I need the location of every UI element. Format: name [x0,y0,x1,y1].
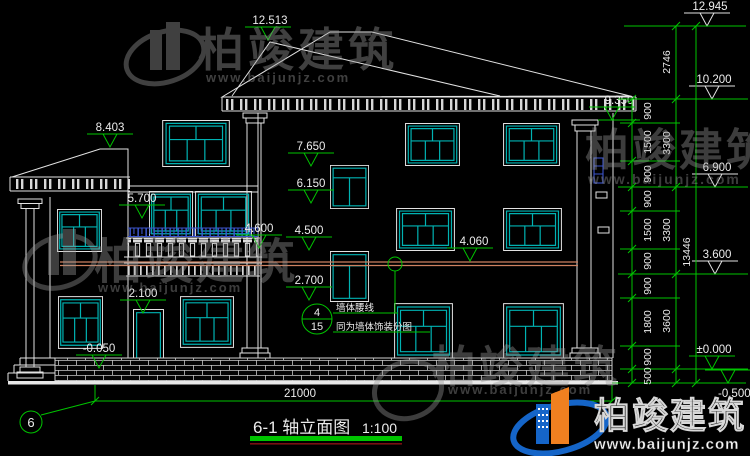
axis-bubble: 6 [20,411,42,433]
watermark-url: www.baijunjz.com [205,70,350,85]
watermark-bottom-center: 柏竣建筑 www.baijunjz.com [367,343,620,427]
watermark-mid-right: 柏竣建筑 www.baijunjz.com [585,126,750,187]
dim-label: 3600 [661,309,673,333]
callout-detail-number: 4 [314,307,320,319]
callout-note-1: 墙体腰线 [336,302,375,314]
stair-window [330,251,368,301]
elevation-drawing: 12.513 8.403 7.650 6.150 5.700 4.600 4.5… [0,0,750,456]
dim-label: 2746 [661,50,673,74]
watermark-top: 柏竣建筑 www.baijunjz.com [119,21,398,93]
dim-label: 3300 [661,218,673,242]
main-cornice [222,97,636,111]
elevation-label-7650: 7.650 [297,141,326,153]
window [181,297,234,348]
dim-label: 1800 [642,310,654,334]
elevation-label-5700: 5.700 [128,193,157,205]
callout-note-2: 同为墙体饰装分图 [336,321,412,333]
elevation-label-4500: 4.500 [295,225,324,237]
elevation-label-2700: 2.700 [295,275,324,287]
axis-number: 6 [27,415,34,430]
overall-width-label: 21000 [284,388,316,400]
left-wing-roof [10,149,130,191]
watermark-url: www.baijunjz.com [447,382,592,397]
dim-label: 500 [642,367,654,385]
elevation-label-6150: 6.150 [297,178,326,190]
dim-label: 1500 [642,218,654,242]
dim-label: 900 [642,190,654,208]
elevation-label-12945: 12.945 [692,1,727,13]
logo-url-text: www.baijunjz.com [593,436,739,453]
belt-reference-circle [388,257,402,271]
elevation-label-10200: 10.200 [696,74,731,86]
brand-logo: 柏竣建筑 www.baijunjz.com [508,387,746,456]
dim-label: 900 [642,277,654,295]
watermark-brand: 柏竣建筑 [585,126,750,175]
elevation-label-4060: 4.060 [460,236,489,248]
cad-elevation-screenshot: 12.513 8.403 7.650 6.150 5.700 4.600 4.5… [0,0,750,456]
dim-label-total: 13446 [681,237,693,266]
window [504,124,560,166]
logo-brand-text: 柏竣建筑 [594,395,746,436]
elevation-label-0000: ±0.000 [696,344,731,356]
window [406,124,460,166]
stair-window [330,165,368,208]
window [504,209,562,251]
callout-sheet-number: 15 [311,321,323,333]
watermark-url: www.baijunjz.com [97,280,242,295]
window [397,209,455,251]
window [163,121,230,167]
window [58,297,102,349]
elevation-label-3600: 3.600 [703,249,732,261]
watermark-url: www.baijunjz.com [587,171,741,187]
dim-label: 900 [642,252,654,270]
title-block: 6-1 轴立面图 1:100 [250,418,402,445]
dim-label: 900 [642,348,654,366]
elevation-label-4600: 4.600 [245,223,274,235]
title-underline-rule [250,443,402,445]
drawing-title: 6-1 轴立面图 [253,418,350,437]
watermark-brand: 柏竣建筑 [198,24,398,76]
logo-tower-icon [551,387,569,444]
elevation-label-m0050: -0.050 [83,343,116,355]
elevation-label-8403: 8.403 [96,122,125,134]
dim-label: 900 [642,102,654,120]
elevation-label-9350: 9.350 [605,95,634,107]
title-underline [250,436,402,441]
drawing-scale: 1:100 [362,420,397,436]
